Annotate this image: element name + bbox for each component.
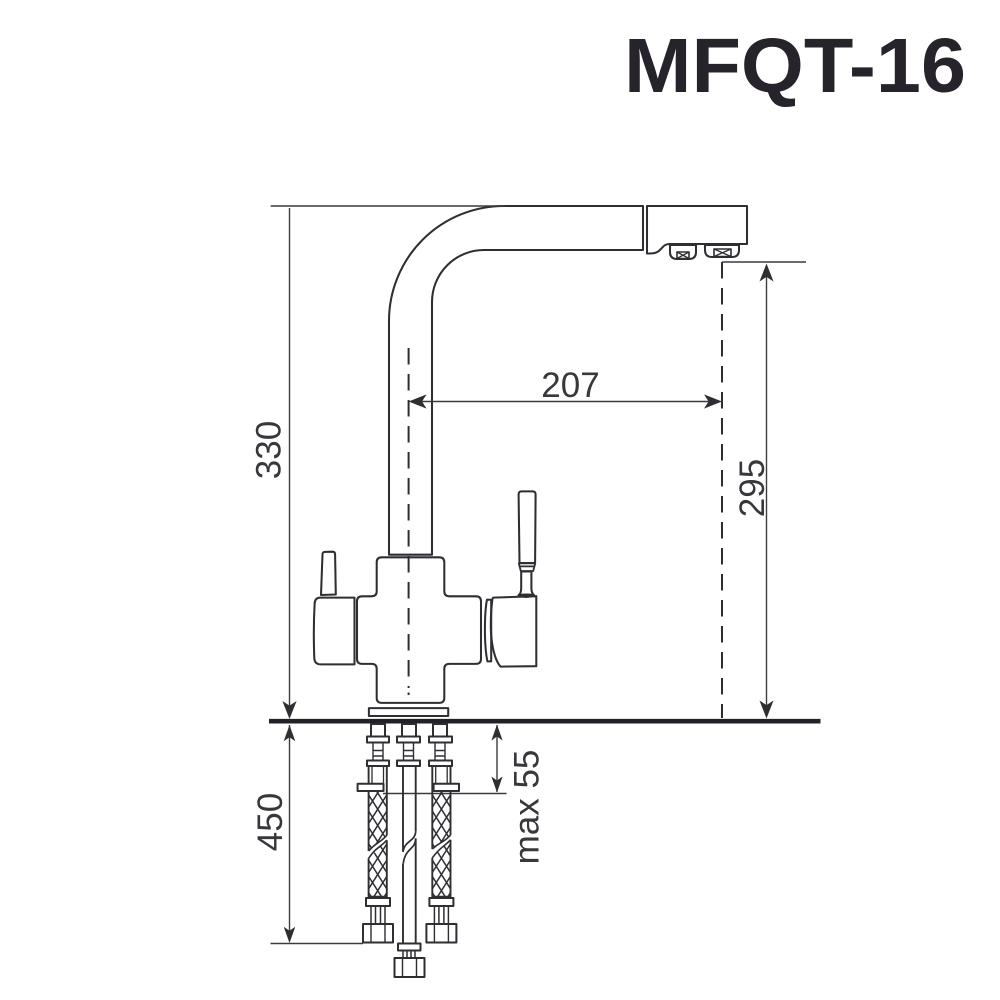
svg-text:295: 295 xyxy=(733,459,772,517)
svg-text:max 55: max 55 xyxy=(508,750,547,865)
svg-text:207: 207 xyxy=(541,366,599,405)
svg-text:450: 450 xyxy=(251,793,290,851)
svg-text:330: 330 xyxy=(250,421,289,479)
svg-text:MFQT-16: MFQT-16 xyxy=(624,23,966,109)
